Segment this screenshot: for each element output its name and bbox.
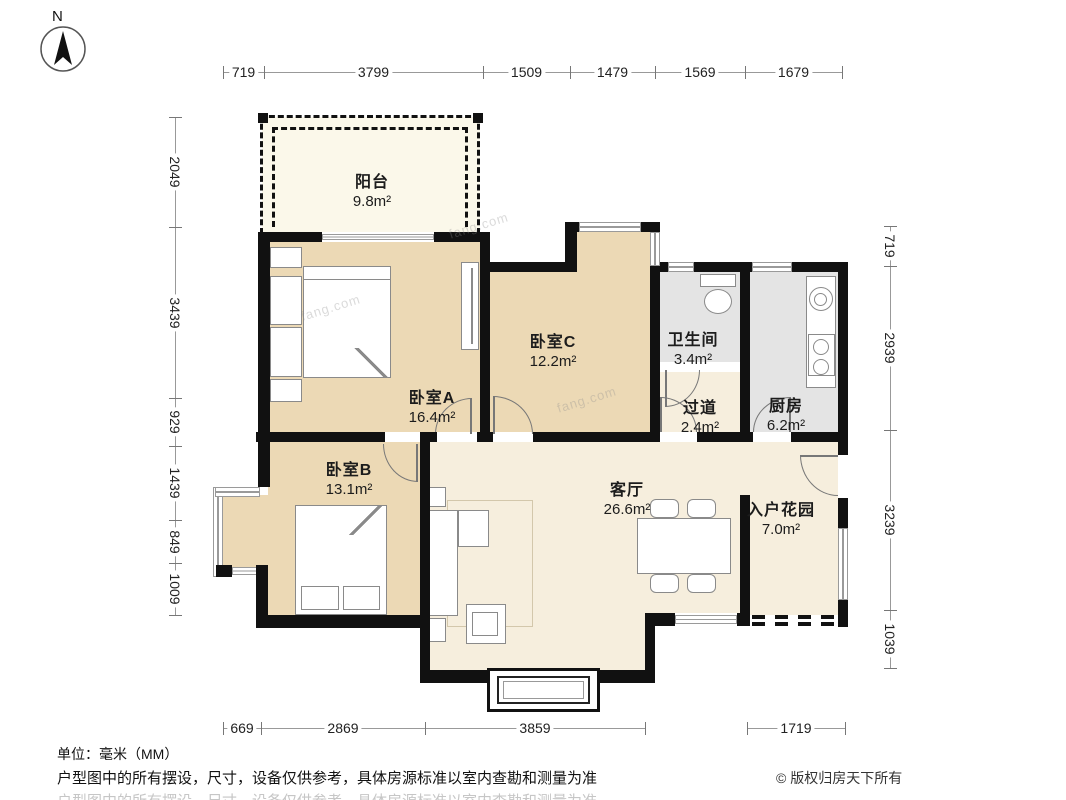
dim-left-tick bbox=[169, 446, 182, 447]
window bbox=[322, 234, 434, 240]
dim-top-tick bbox=[842, 66, 843, 79]
living-floor bbox=[740, 442, 750, 495]
dim-top-value: 1569 bbox=[681, 64, 718, 80]
window bbox=[213, 487, 223, 577]
wall-segment bbox=[565, 222, 577, 272]
bedroom-c-floor bbox=[577, 232, 650, 272]
wardrobe bbox=[461, 262, 479, 350]
compass-north-label: N bbox=[50, 8, 65, 25]
wall-segment bbox=[256, 432, 385, 442]
window bbox=[232, 567, 258, 575]
wall-segment bbox=[641, 222, 660, 232]
wardrobe-line bbox=[471, 268, 473, 344]
dim-bottom-tick bbox=[425, 722, 426, 735]
dim-bottom-tick bbox=[747, 722, 748, 735]
dim-left-tick bbox=[169, 227, 182, 228]
garden-open-edge bbox=[752, 615, 836, 619]
burner bbox=[813, 359, 829, 375]
wall-segment bbox=[256, 615, 430, 628]
cabinet bbox=[270, 327, 302, 377]
wall-segment bbox=[420, 670, 497, 683]
wall-segment bbox=[420, 432, 437, 442]
room-label-garden: 入户花园 7.0m² bbox=[747, 496, 815, 538]
wall-segment bbox=[258, 232, 270, 487]
nightstand bbox=[270, 379, 302, 402]
dim-left-tick bbox=[169, 563, 182, 564]
dim-top-value: 1509 bbox=[508, 64, 545, 80]
copyright: © 版权归房天下所有 bbox=[776, 768, 902, 788]
entrance-porch-step bbox=[503, 681, 584, 699]
dim-left-value: 929 bbox=[167, 407, 183, 436]
room-label-bathroom: 卫生间 3.4m² bbox=[667, 326, 718, 368]
wall-segment bbox=[660, 262, 668, 272]
wall-segment bbox=[838, 600, 848, 627]
room-label-living: 客厅 26.6m² bbox=[604, 476, 651, 518]
dim-bottom-tick bbox=[645, 722, 646, 735]
bedroom-a-door-leaf bbox=[470, 398, 472, 434]
wall-segment bbox=[838, 498, 848, 528]
wall-segment bbox=[650, 266, 660, 442]
wall-segment bbox=[533, 432, 658, 442]
dim-right-value: 2939 bbox=[882, 329, 898, 366]
sofa-chaise bbox=[458, 510, 489, 547]
dim-top-value: 1679 bbox=[775, 64, 812, 80]
disclaimer-cropped: 户型图中的所有摆设，尺寸，设备仅供参考，具体房源标准以室内查勘和测量为准 bbox=[57, 790, 597, 800]
wall-segment bbox=[838, 262, 848, 455]
chair bbox=[650, 499, 679, 518]
side-table bbox=[429, 487, 446, 507]
dim-bottom-value: 2869 bbox=[324, 720, 361, 736]
side-table bbox=[429, 618, 446, 642]
dim-top-value: 1479 bbox=[594, 64, 631, 80]
chair bbox=[687, 574, 716, 593]
hallway-door-leaf bbox=[660, 397, 662, 432]
garden-open-edge bbox=[752, 622, 836, 626]
wall-segment bbox=[420, 442, 430, 682]
dim-bottom-value: 3859 bbox=[516, 720, 553, 736]
armchair-seat bbox=[472, 612, 498, 636]
room-label-bedroom-b: 卧室B 13.1m² bbox=[326, 456, 373, 498]
toilet-tank bbox=[700, 274, 736, 287]
bed-pillow bbox=[301, 586, 339, 610]
dim-top-tick bbox=[264, 66, 265, 79]
dim-bottom-tick bbox=[223, 722, 224, 735]
bed-fold bbox=[345, 505, 387, 535]
wall-segment bbox=[216, 565, 232, 577]
entry-door-leaf bbox=[800, 455, 838, 457]
dim-left-value: 2049 bbox=[167, 153, 183, 190]
dim-right-value: 3239 bbox=[882, 501, 898, 538]
dim-left-tick bbox=[169, 520, 182, 521]
window bbox=[668, 262, 694, 272]
dim-right-tick bbox=[884, 668, 897, 669]
bedroom-c-door-leaf bbox=[493, 396, 495, 434]
compass-icon bbox=[36, 16, 92, 78]
dining-table bbox=[637, 518, 731, 574]
dim-right-tick bbox=[884, 610, 897, 611]
room-label-balcony: 阳台 9.8m² bbox=[353, 168, 391, 210]
dim-right-tick bbox=[884, 430, 897, 431]
dim-bottom-value: 669 bbox=[227, 720, 256, 736]
dim-bottom-tick bbox=[845, 722, 846, 735]
wall-segment bbox=[645, 613, 675, 626]
room-label-kitchen: 厨房 6.2m² bbox=[767, 392, 805, 434]
dim-left-tick bbox=[169, 398, 182, 399]
dim-right-value: 719 bbox=[882, 231, 898, 260]
window bbox=[215, 487, 260, 497]
bedroom-b-door-leaf bbox=[416, 444, 418, 482]
cabinet bbox=[270, 276, 302, 325]
bedroom-b-bay-floor bbox=[223, 495, 268, 567]
dim-left-tick bbox=[169, 615, 182, 616]
bed-pillow bbox=[343, 586, 380, 610]
window bbox=[838, 528, 848, 600]
window bbox=[675, 615, 737, 624]
dim-top-tick bbox=[745, 66, 746, 79]
dim-top-tick bbox=[570, 66, 571, 79]
dim-left-value: 1439 bbox=[167, 464, 183, 501]
room-label-bedroom-c: 卧室C 12.2m² bbox=[530, 328, 577, 370]
sink-inner bbox=[814, 293, 827, 306]
dim-bottom-tick bbox=[261, 722, 262, 735]
dim-right-value: 1039 bbox=[882, 620, 898, 657]
dim-left-value: 1009 bbox=[167, 570, 183, 607]
bed-pillow bbox=[303, 266, 391, 280]
dim-left-tick bbox=[169, 117, 182, 118]
wall-segment bbox=[477, 432, 493, 442]
sofa bbox=[429, 510, 458, 616]
dim-top-value: 3799 bbox=[355, 64, 392, 80]
dim-left-value: 3439 bbox=[167, 294, 183, 331]
room-label-hallway: 过道 2.4m² bbox=[681, 394, 719, 436]
burner bbox=[813, 339, 829, 355]
bed-fold bbox=[352, 348, 391, 378]
chair bbox=[650, 574, 679, 593]
dim-top-tick bbox=[483, 66, 484, 79]
nightstand bbox=[270, 247, 302, 268]
wall-segment bbox=[740, 272, 750, 442]
dim-right-tick bbox=[884, 226, 897, 227]
toilet-bowl bbox=[704, 289, 732, 314]
dim-top-value: 719 bbox=[229, 64, 258, 80]
dim-top-tick bbox=[655, 66, 656, 79]
wall-segment bbox=[694, 262, 752, 272]
floorplan-page: N 阳台 9.8m² 卧室A 16.4m² 卧室C 12.2m² 卫生间 3.4… bbox=[0, 0, 1066, 800]
dim-bottom-value: 1719 bbox=[777, 720, 814, 736]
dim-right-tick bbox=[884, 266, 897, 267]
disclaimer: 户型图中的所有摆设，尺寸，设备仅供参考，具体房源标准以室内查勘和测量为准 bbox=[57, 767, 597, 788]
window bbox=[650, 232, 660, 266]
window bbox=[579, 222, 641, 232]
room-label-bedroom-a: 卧室A 16.4m² bbox=[409, 384, 456, 426]
chair bbox=[687, 499, 716, 518]
dim-left-value: 849 bbox=[167, 527, 183, 556]
wall-segment bbox=[480, 262, 577, 272]
window bbox=[752, 262, 792, 272]
dim-top-tick bbox=[223, 66, 224, 79]
unit-note: 单位：毫米（MM） bbox=[57, 744, 178, 764]
